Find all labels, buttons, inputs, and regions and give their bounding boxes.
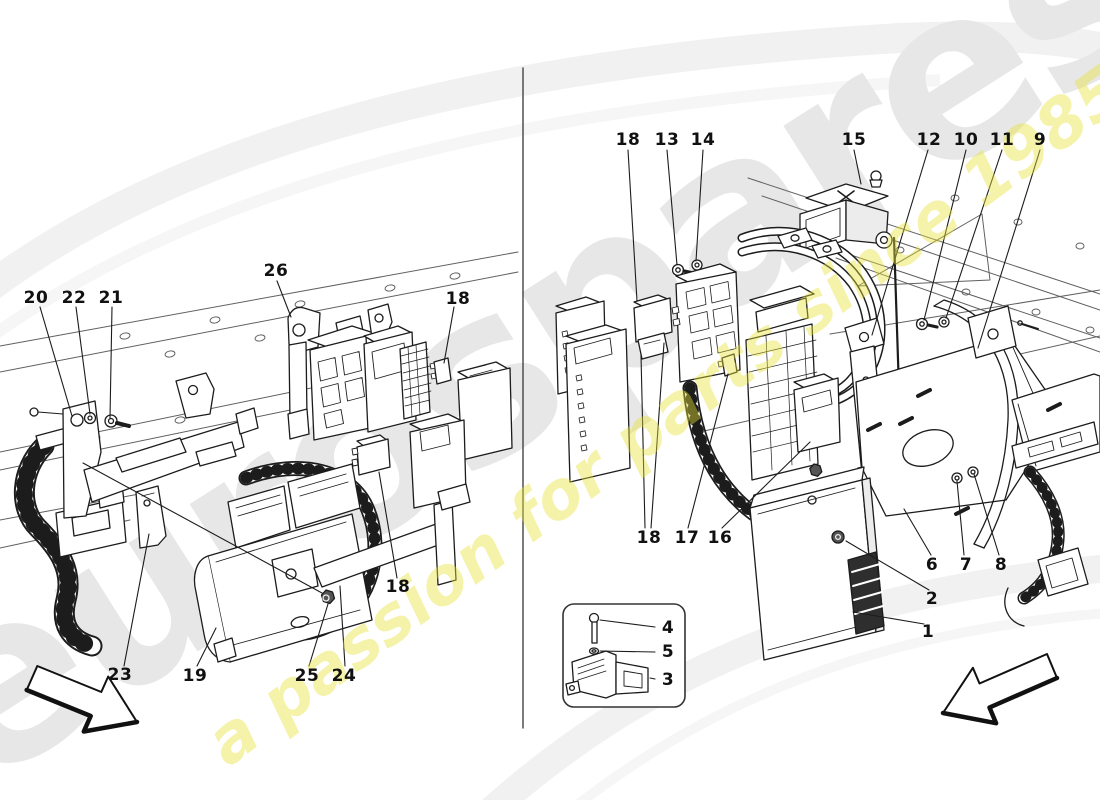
bolt-10-drawing [917,319,938,330]
washer-5-drawing [590,648,599,654]
washer-11-drawing [939,317,949,327]
sensor-inset-box [563,604,685,707]
diagram-canvas: eurospares [0,0,1100,800]
parts-diagram-page: eurospares [0,0,1100,800]
relay-16-drawing [794,374,840,452]
ecu-1-drawing [750,467,884,660]
bolt-21-drawing [105,415,129,427]
nut-15-fixing-drawing [870,171,882,187]
corner-wiring-drawing [1005,472,1088,626]
nut-25-drawing [322,590,335,604]
direction-arrow-right [943,654,1057,723]
washer-14-drawing [692,260,702,270]
nut-right-drawing [810,464,822,476]
